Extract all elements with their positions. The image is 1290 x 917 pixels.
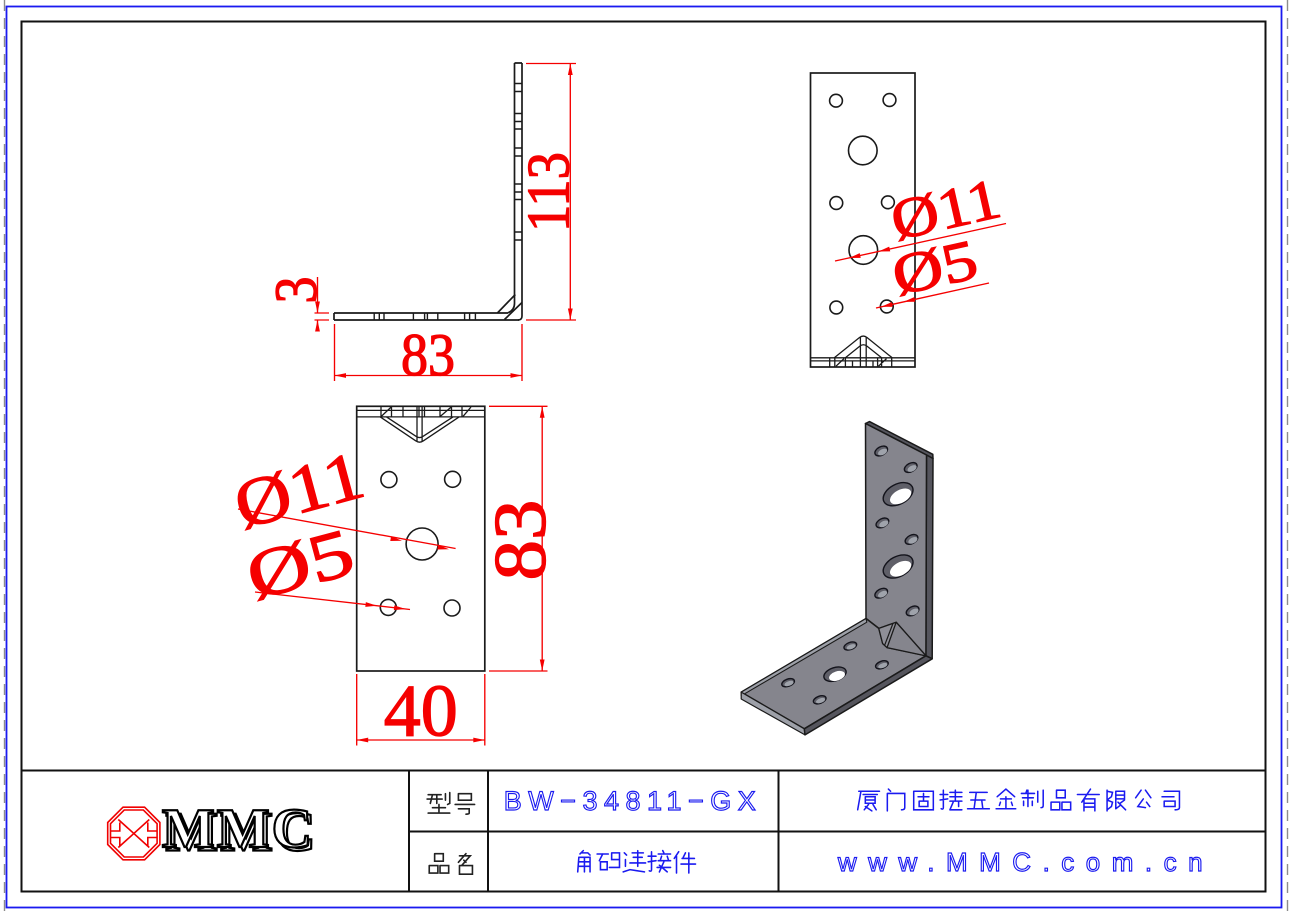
svg-text:113: 113 (516, 152, 582, 232)
svg-text:83: 83 (480, 500, 562, 581)
svg-text:83: 83 (401, 322, 455, 388)
svg-text:40: 40 (384, 671, 458, 753)
svg-text:www.MMC.com.cn: www.MMC.com.cn (837, 847, 1214, 877)
svg-text:MMC: MMC (162, 798, 314, 860)
svg-text:3: 3 (263, 277, 329, 304)
svg-text:BW−34811−GX: BW−34811−GX (504, 786, 763, 816)
